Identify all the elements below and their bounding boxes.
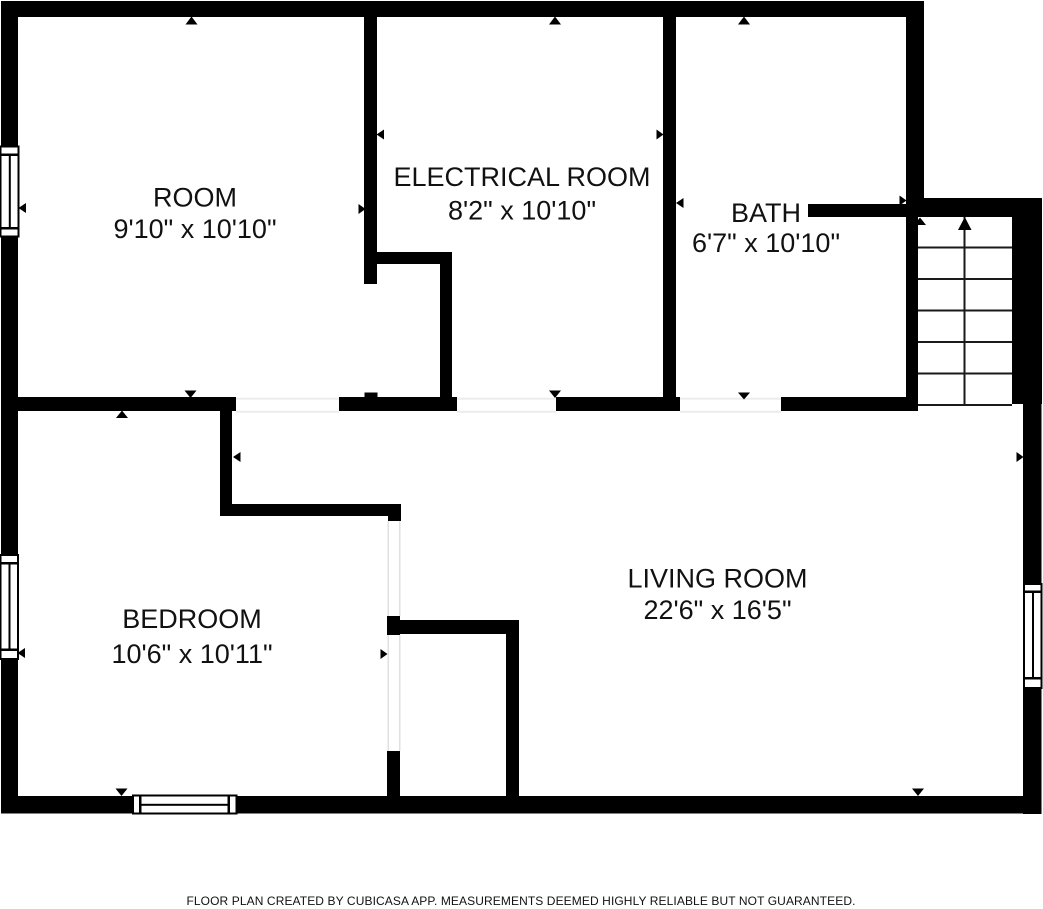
svg-text:BEDROOM: BEDROOM: [122, 604, 262, 634]
svg-text:6'7" x 10'10": 6'7" x 10'10": [692, 228, 840, 258]
svg-text:8'2" x 10'10": 8'2" x 10'10": [448, 196, 596, 226]
svg-text:ELECTRICAL ROOM: ELECTRICAL ROOM: [393, 162, 650, 192]
svg-text:BATH: BATH: [731, 198, 801, 228]
svg-text:LIVING ROOM: LIVING ROOM: [627, 564, 807, 594]
svg-text:9'10" x 10'10": 9'10" x 10'10": [113, 214, 276, 244]
svg-text:22'6" x 16'5": 22'6" x 16'5": [643, 595, 791, 625]
svg-text:ROOM: ROOM: [153, 182, 237, 212]
svg-text:10'6" x 10'11": 10'6" x 10'11": [111, 639, 272, 669]
svg-text:FLOOR PLAN CREATED BY CUBICASA: FLOOR PLAN CREATED BY CUBICASA APP. MEAS…: [186, 894, 855, 908]
